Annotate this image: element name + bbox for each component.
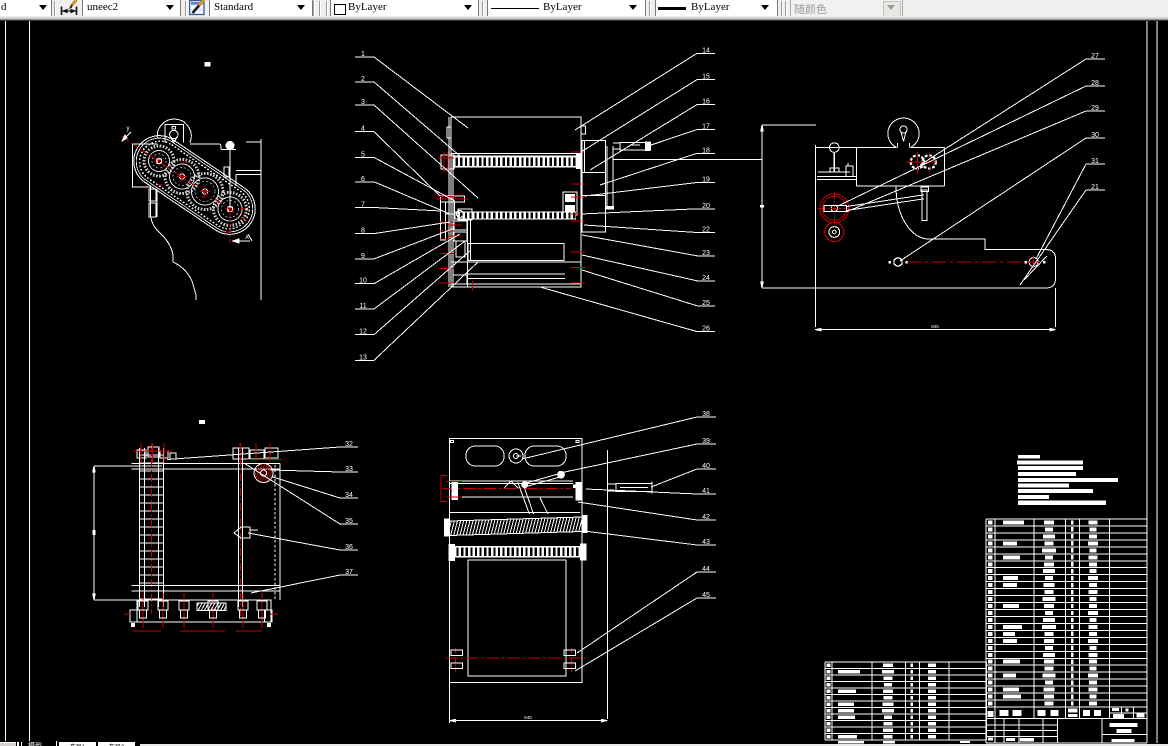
svg-text:5: 5 [361,151,365,158]
svg-text:13: 13 [359,354,367,361]
svg-text:16: 16 [702,99,710,106]
svg-text:34: 34 [345,492,353,499]
svg-text:25: 25 [702,300,710,307]
svg-text:32: 32 [345,441,353,448]
svg-text:y: y [127,126,130,132]
svg-text:39: 39 [702,438,710,445]
svg-text:40: 40 [702,463,710,470]
svg-text:12: 12 [359,329,367,336]
svg-text:21: 21 [1091,184,1099,191]
svg-text:6: 6 [361,176,365,183]
svg-text:37: 37 [345,569,353,576]
svg-text:11: 11 [359,303,366,310]
svg-text:19: 19 [702,177,710,184]
svg-text:26: 26 [702,326,710,333]
svg-text:22: 22 [702,227,710,234]
svg-text:27: 27 [1091,53,1099,60]
svg-text:24: 24 [702,275,710,282]
svg-text:4: 4 [361,126,365,133]
svg-text:31: 31 [1091,158,1099,165]
svg-text:14: 14 [702,47,710,54]
svg-text:36: 36 [345,544,353,551]
svg-text:29: 29 [1091,105,1099,112]
svg-text:30: 30 [1091,132,1099,139]
svg-text:23: 23 [702,250,710,257]
svg-text:45: 45 [702,592,710,599]
svg-text:8: 8 [361,228,365,235]
svg-text:2: 2 [361,76,365,83]
svg-text:1: 1 [361,51,365,58]
svg-text:33: 33 [345,466,353,473]
svg-text:3: 3 [361,99,365,106]
svg-text:18: 18 [702,147,710,154]
svg-text:44: 44 [702,566,710,573]
svg-text:42: 42 [702,514,710,521]
svg-text:15: 15 [702,74,710,81]
svg-text:28: 28 [1091,80,1099,87]
svg-text:9: 9 [361,253,365,260]
svg-text:845: 845 [931,324,939,329]
svg-text:540: 540 [524,715,532,720]
svg-text:20: 20 [702,203,710,210]
svg-text:10: 10 [359,278,367,285]
svg-text:7: 7 [361,202,365,209]
svg-text:43: 43 [702,539,710,546]
svg-text:17: 17 [702,124,710,131]
svg-text:35: 35 [345,518,353,525]
svg-text:38: 38 [702,411,710,418]
svg-text:41: 41 [702,488,710,495]
